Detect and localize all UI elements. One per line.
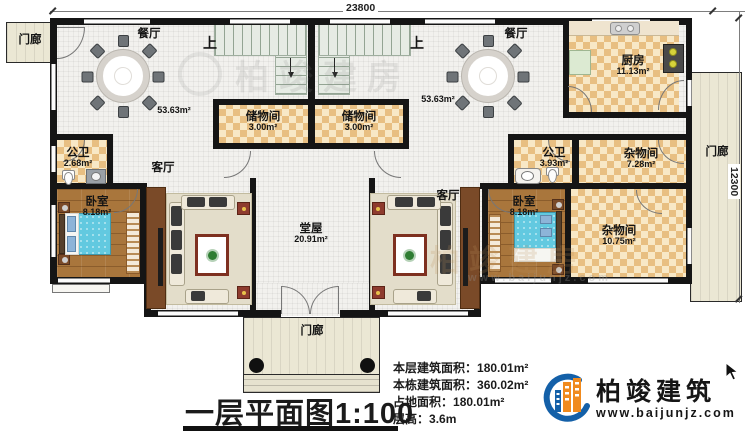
stairs-left-flight <box>214 21 307 56</box>
info-value: 3.6m <box>429 412 456 426</box>
room-area: 53.63m² <box>421 95 455 105</box>
wall <box>308 21 315 149</box>
wardrobe-left <box>126 212 140 274</box>
room-name: 门廊 <box>706 146 729 158</box>
wall <box>508 134 514 189</box>
label-bedroom-right: 卧室8.18m² <box>510 196 539 218</box>
company-logo-icon <box>541 372 591 426</box>
room-area: 20.91m² <box>294 235 328 245</box>
room-area: 3.00m² <box>246 123 281 133</box>
window <box>388 311 468 316</box>
info-line: 占地面积：180.01m² <box>393 394 528 411</box>
room-area: 2.68m² <box>64 159 93 169</box>
label-stairs-left-up: 上 <box>203 33 217 53</box>
room-name: 杂物间 <box>624 148 659 160</box>
company-website: www.baijunjz.com <box>596 406 736 420</box>
room-name: 门廊 <box>19 34 42 46</box>
label-bedroom-left: 卧室8.18m² <box>83 196 112 218</box>
wall <box>403 99 409 149</box>
stairs-right-arrow <box>332 72 338 78</box>
label-bath-right: 公卫3.93m² <box>540 147 569 169</box>
label-stairs-right-up: 上 <box>410 33 424 53</box>
stairs-right-direction-line <box>334 58 335 72</box>
sink-basin <box>627 25 634 32</box>
room-name: 客厅 <box>437 190 460 202</box>
room-name: 餐厅 <box>138 28 161 40</box>
label-utility-small: 杂物间7.28m² <box>624 148 659 170</box>
room-name: 餐厅 <box>505 28 528 40</box>
wardrobe-right <box>489 214 501 272</box>
stairs-left-arrow <box>288 72 294 78</box>
round-table <box>462 50 514 102</box>
porch-column-left <box>249 358 264 373</box>
sink-basin <box>615 25 622 32</box>
room-name: 公卫 <box>543 147 566 159</box>
dimension-line-right <box>739 11 740 303</box>
room-area: 11.13m² <box>616 67 649 77</box>
wall <box>565 183 692 189</box>
round-table <box>97 50 149 102</box>
window <box>58 278 110 283</box>
label-dining-right-area: 53.63m² <box>421 95 455 105</box>
basin-right <box>521 171 534 181</box>
room-name: 卧室 <box>86 196 109 208</box>
label-utility-large: 杂物间10.75m² <box>602 225 637 247</box>
label-dining-left-area: 53.63m² <box>157 106 191 116</box>
info-label: 占地面积： <box>393 395 453 409</box>
wall <box>572 134 579 189</box>
info-label: 本栋建筑面积： <box>393 378 477 392</box>
label-dining-right: 餐厅 <box>505 28 528 40</box>
room-name: 公卫 <box>67 147 90 159</box>
mouse-cursor <box>724 362 740 382</box>
room-name: 杂物间 <box>602 225 637 237</box>
room-name: 门廊 <box>301 325 324 337</box>
title-underline <box>183 426 398 431</box>
room-name: 储物间 <box>342 111 377 123</box>
burner <box>669 48 677 56</box>
company-name: 柏竣建筑 <box>596 372 716 408</box>
info-value: 360.02m² <box>477 378 528 392</box>
label-porch-top-left: 门廊 <box>19 34 42 46</box>
wall <box>482 183 488 284</box>
sofa-set-left <box>166 193 252 305</box>
room-area: 3.00m² <box>342 123 377 133</box>
room-area: 10.75m² <box>602 237 637 247</box>
window <box>687 228 692 264</box>
sofa-set-right <box>370 193 456 305</box>
window <box>425 19 495 24</box>
room-name: 客厅 <box>152 162 175 174</box>
label-storage-right: 储物间3.00m² <box>342 111 377 133</box>
window <box>51 64 56 110</box>
window <box>158 311 238 316</box>
floor-plan-canvas: 柏竣建房 柏竣建房 www.baijunjz.com 门廊 餐厅 53.63m²… <box>0 0 750 441</box>
room-area: 3.93m² <box>540 159 569 169</box>
info-label: 层高： <box>393 412 429 426</box>
label-porch-bottom: 门廊 <box>301 325 324 337</box>
window <box>84 19 150 24</box>
room-name: 厨房 <box>622 55 645 67</box>
label-dining-left: 餐厅 <box>138 28 161 40</box>
room-name: 储物间 <box>246 111 281 123</box>
room-name: 卧室 <box>513 196 536 208</box>
dimension-line-top <box>50 11 745 12</box>
window <box>588 278 668 283</box>
dimension-width: 23800 <box>343 2 378 14</box>
label-hall: 堂屋20.91m² <box>294 223 328 245</box>
info-line: 本层建筑面积：180.01m² <box>393 360 528 377</box>
room-area: 8.18m² <box>510 208 539 218</box>
stairs-left-direction-line <box>290 58 291 72</box>
info-line: 本栋建筑面积：360.02m² <box>393 377 528 394</box>
tv-right <box>463 228 468 286</box>
room-name: 堂屋 <box>300 223 323 235</box>
window <box>687 80 692 106</box>
info-value: 180.01m² <box>477 361 528 375</box>
room-area: 53.63m² <box>157 106 191 116</box>
wall <box>563 112 692 118</box>
label-living-right: 客厅 <box>437 190 460 202</box>
window <box>330 19 390 24</box>
label-bath-left: 公卫2.68m² <box>64 147 93 169</box>
dimension-depth: 12300 <box>728 164 740 199</box>
fridge <box>569 50 591 75</box>
tv-left <box>158 228 163 286</box>
porch-column-right <box>360 358 375 373</box>
basin-left <box>91 172 101 181</box>
dining-table-set-left <box>82 35 166 119</box>
bay-window <box>52 284 110 293</box>
label-porch-right: 门廊 <box>706 146 729 158</box>
label-kitchen: 厨房11.13m² <box>616 55 649 77</box>
stairs-right-flight <box>318 21 411 56</box>
burner <box>669 60 677 68</box>
wall <box>107 134 113 189</box>
info-line: 层高：3.6m <box>393 411 528 428</box>
tv-cabinet-left <box>146 187 166 309</box>
window <box>51 146 56 172</box>
info-label: 本层建筑面积： <box>393 361 477 375</box>
window <box>495 278 551 283</box>
info-value: 180.01m² <box>453 395 504 409</box>
room-area: 8.18m² <box>83 208 112 218</box>
info-block: 本层建筑面积：180.01m² 本栋建筑面积：360.02m² 占地面积：180… <box>393 360 528 428</box>
label-storage-left: 储物间3.00m² <box>246 111 281 133</box>
room-area: 7.28m² <box>624 160 659 170</box>
wall <box>213 99 219 149</box>
dining-table-set-right <box>447 35 531 119</box>
window <box>230 19 290 24</box>
label-living-left: 客厅 <box>152 162 175 174</box>
